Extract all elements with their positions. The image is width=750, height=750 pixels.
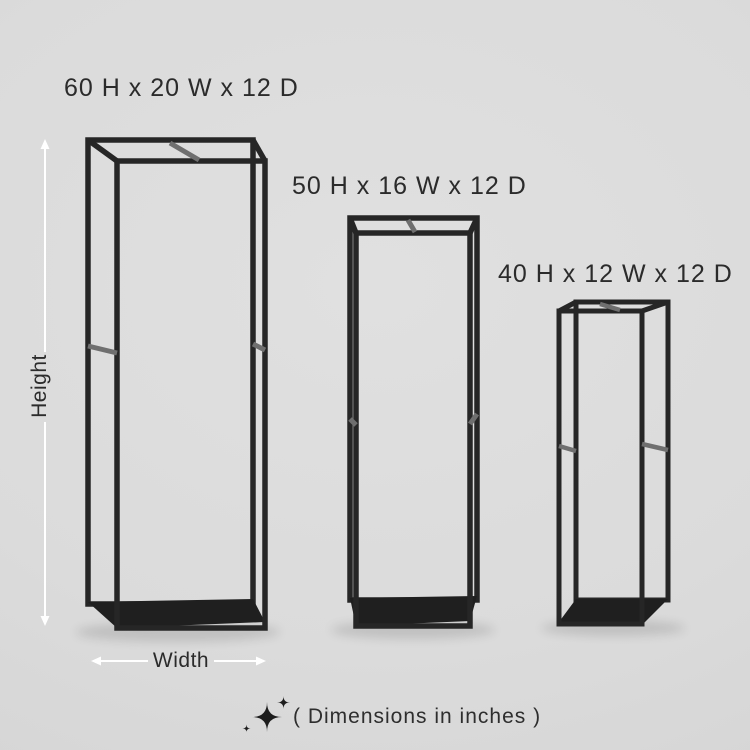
rack-1-mid-rail-left (88, 346, 117, 353)
rack-3 (559, 302, 668, 625)
racks (88, 140, 668, 628)
sparkles-icon (243, 696, 291, 733)
width-arrowhead-left-icon (91, 657, 101, 666)
rack-1-back-frame (88, 140, 253, 604)
product-dimensions-diagram: 60 H x 20 W x 12 D 50 H x 16 W x 12 D 40… (0, 0, 750, 750)
height-arrowhead-down-icon (41, 616, 50, 626)
sparkle-large-icon (252, 702, 282, 732)
dimensions-caption: ( Dimensions in inches ) (293, 705, 541, 729)
rack-3-bottom-shelf (559, 599, 668, 625)
height-axis-label: Height (30, 346, 50, 426)
rack-1-top-connector-left (88, 140, 117, 161)
rack-3-front-frame (559, 311, 642, 624)
rack-3-mid-rail-left (559, 446, 576, 451)
rack-2-top-rail (408, 220, 415, 232)
width-arrowhead-right-icon (256, 657, 266, 666)
rack-2-front-frame (356, 233, 470, 626)
rack-3-mid-rail-right (642, 444, 668, 450)
rack-2-back-frame (350, 218, 477, 600)
product-1-dimensions-label: 60 H x 20 W x 12 D (64, 74, 299, 103)
product-3-dimensions-label: 40 H x 12 W x 12 D (498, 260, 733, 289)
product-2-dimensions-label: 50 H x 16 W x 12 D (292, 172, 527, 201)
sparkle-small-icon (277, 696, 290, 709)
sparkle-tiny-icon (243, 725, 251, 733)
rack-3-back-frame (576, 302, 668, 600)
rack-1 (88, 140, 265, 628)
height-arrowhead-up-icon (41, 139, 50, 149)
scene-canvas (0, 0, 750, 750)
rack-1-top-rail (170, 143, 199, 160)
rack-1-front-frame (117, 161, 265, 628)
rack-2 (350, 218, 477, 626)
rack-2-bottom-shelf (350, 596, 477, 626)
width-axis-label: Width (131, 649, 231, 673)
